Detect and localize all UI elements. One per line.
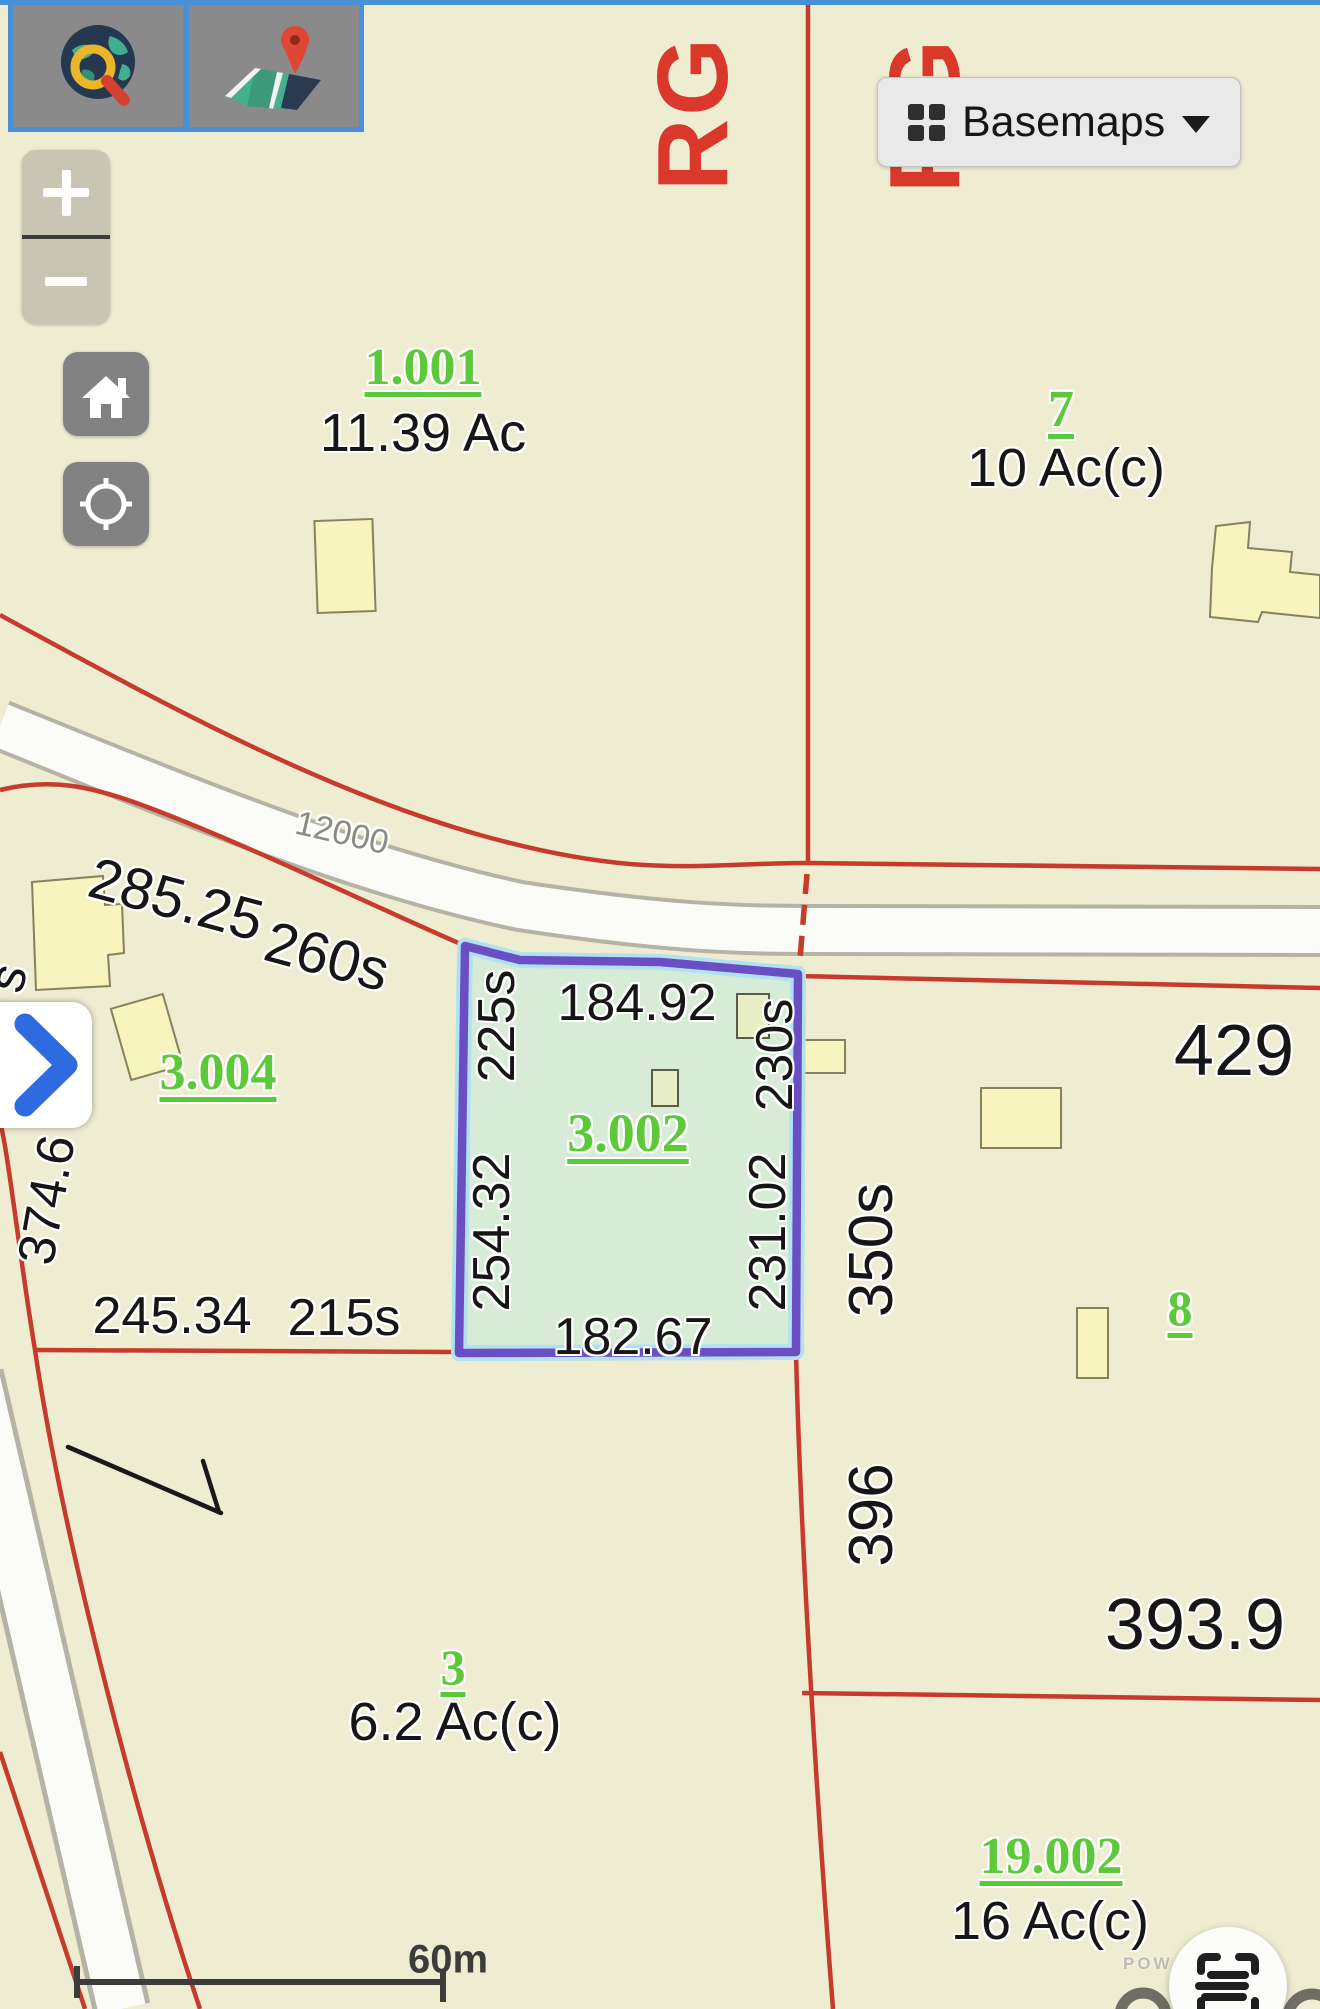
dimension-label: 225s bbox=[471, 970, 523, 1083]
dimension-label: 393.9 bbox=[1105, 1589, 1285, 1661]
dimension-label: 215s bbox=[288, 1292, 401, 1344]
locate-button[interactable] bbox=[63, 462, 149, 546]
parcel-id-label-selected[interactable]: 3.002 bbox=[567, 1106, 689, 1160]
zoom-in-button[interactable] bbox=[22, 150, 110, 235]
map-pin-icon bbox=[219, 18, 329, 114]
parcel-id-label[interactable]: 3 bbox=[441, 1642, 466, 1692]
road-name-label: RG bbox=[643, 35, 743, 191]
dimension-label: 230s bbox=[749, 999, 801, 1112]
app-toolbar bbox=[8, 0, 364, 132]
home-icon bbox=[78, 368, 134, 420]
basemaps-button[interactable]: Basemaps bbox=[877, 77, 1241, 167]
home-button[interactable] bbox=[63, 352, 149, 436]
scan-text-icon bbox=[1187, 1945, 1269, 2009]
basemaps-label: Basemaps bbox=[962, 98, 1165, 147]
dimension-label: 231.02 bbox=[742, 1152, 794, 1311]
zoom-out-button[interactable] bbox=[22, 239, 110, 324]
dimension-label: 182.67 bbox=[553, 1311, 712, 1363]
dimension-label: 245.34 bbox=[92, 1290, 251, 1342]
grid-icon bbox=[908, 104, 945, 141]
parcel-area-label: 10 Ac(c) bbox=[967, 441, 1165, 495]
road-left bbox=[0, 1375, 122, 2009]
powered-by-text: POW bbox=[1123, 1954, 1173, 1974]
sidebar-expand-button[interactable] bbox=[0, 1002, 92, 1128]
dimension-label: 184.92 bbox=[557, 977, 716, 1029]
search-tool-button[interactable] bbox=[13, 5, 183, 127]
parcel-area-label: 16 Ac(c) bbox=[951, 1894, 1149, 1948]
parcel-id-label[interactable]: 3.004 bbox=[160, 1047, 277, 1099]
dimension-label: 350s bbox=[841, 1183, 903, 1317]
parcel-id-label[interactable]: 1.001 bbox=[365, 342, 482, 394]
dimension-label: 396 bbox=[841, 1463, 903, 1566]
map-locator-button[interactable] bbox=[189, 5, 359, 127]
zoom-out-icon bbox=[45, 277, 87, 286]
chevron-right-icon bbox=[13, 1010, 83, 1120]
parcel-id-label[interactable]: 8 bbox=[1168, 1283, 1193, 1333]
zoom-control bbox=[22, 150, 110, 324]
map-viewport[interactable]: RG RG 12000 1.001 11.39 Ac 7 10 Ac(c) 3.… bbox=[0, 0, 1320, 2009]
dimension-label: 429 bbox=[1174, 1015, 1294, 1087]
parcel-area-label: 6.2 Ac(c) bbox=[348, 1695, 561, 1749]
scale-bar-label: 60m bbox=[408, 1938, 488, 1983]
chevron-down-icon bbox=[1182, 116, 1210, 133]
globe-search-icon bbox=[52, 20, 144, 112]
parcel-id-label[interactable]: 7 bbox=[1048, 384, 1074, 436]
locate-icon bbox=[78, 476, 134, 532]
arrow-annotation bbox=[68, 1447, 221, 1513]
parcel-id-label[interactable]: 19.002 bbox=[980, 1831, 1123, 1883]
zoom-in-icon bbox=[62, 170, 71, 216]
dimension-label: 254.32 bbox=[466, 1152, 518, 1311]
parcel-area-label: 11.39 Ac bbox=[320, 406, 526, 460]
